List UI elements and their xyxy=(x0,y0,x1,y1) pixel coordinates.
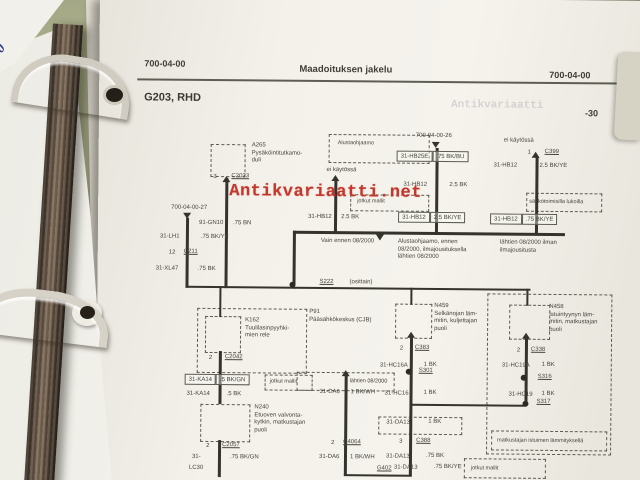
wire-label: Vain ennen 08/2000 xyxy=(321,238,374,246)
dashed-box-label: matkustajan istuimen lämmityksellä xyxy=(497,437,583,444)
wire-label: 31-DA13 xyxy=(386,420,410,428)
watermark: Antikvariaatti.net xyxy=(229,183,422,202)
wire-label: 2.5 BK xyxy=(449,182,467,190)
wire-label: N459 Selkänojan läm- mitin, kuljettajan … xyxy=(434,303,477,333)
wire-label: 12 xyxy=(169,250,176,258)
connector-label: C388 xyxy=(416,438,430,446)
wire-label: N458 Istuintyynyn läm- mitin, matkustaja… xyxy=(549,304,598,334)
wire-label: 31-HB12 xyxy=(493,162,517,170)
dashed-box-label: jotkut mallit xyxy=(471,465,499,472)
wire-label: 31-KA14 xyxy=(186,391,209,399)
connector-label: S316 xyxy=(538,374,552,382)
wire-label: 2 xyxy=(209,355,212,363)
wire-label: 91-GN10 xyxy=(199,220,223,228)
wire-label: 2.5 BK/YE xyxy=(539,163,567,171)
wire-gauge-color: 2.5 BK/YE xyxy=(430,212,466,223)
dashed-box-label: lähtien 08/2000 xyxy=(350,378,388,385)
wire-label: 1 BK/WH xyxy=(351,389,376,397)
wire-gauge-color: .5 BK/GN xyxy=(216,374,249,385)
wire-label: K162 Tuulilasinpyyhki- mien rele xyxy=(245,317,289,340)
wire-label: 1 BK xyxy=(542,362,555,370)
connector-label: C383 xyxy=(415,345,429,353)
wire-segment xyxy=(344,375,348,475)
wire-arrow-up xyxy=(407,332,415,338)
wire-label: 2 xyxy=(400,346,403,354)
wire-label: 31-HC16 xyxy=(385,390,409,398)
photo-of-manual-page: 700-04-00 Maadoituksen jakelu 700-04-00 … xyxy=(0,0,640,480)
wire-label: ei käytössä xyxy=(504,138,534,146)
wire-label: N240 Etuoven valvonta- kytkin, matkustaj… xyxy=(254,404,305,434)
wire-code-box: 31-HB122.5 BK/YE xyxy=(398,212,465,224)
wire-segment xyxy=(344,474,412,477)
wire-code-box: 31-KA14.5 BK/GN xyxy=(185,374,250,386)
connector-label: C399 xyxy=(545,149,559,157)
connector-label: C2042 xyxy=(225,354,243,362)
wire-code: 31-HB12 xyxy=(398,212,430,223)
wire-segment xyxy=(293,231,565,236)
wire-label: 31-DA6 xyxy=(320,389,340,397)
wire-label: .75 BK/GN xyxy=(230,454,259,462)
component-box-n240 xyxy=(200,404,250,442)
wire-gauge-color: .75 BK/YE xyxy=(522,214,558,225)
wire-code: 31-KA14 xyxy=(185,374,216,385)
connector-label: C211 xyxy=(184,249,198,257)
wire-label: 1 xyxy=(528,150,531,158)
wire-label: 3 xyxy=(213,174,216,182)
wire-arrow-up xyxy=(522,333,530,339)
wire-segment xyxy=(219,286,221,317)
variant-box-jotkut-mallit: jotkut mallit xyxy=(464,458,546,479)
wire-label: 31-HB12 xyxy=(308,214,332,222)
wire-code-box: 31-HB12.75 BK/YE xyxy=(490,213,557,225)
wire-label: 2 xyxy=(331,440,334,448)
wire-label: .75 BK/YE xyxy=(201,234,229,242)
wire-segment xyxy=(218,440,221,477)
wire-code-box: 31-HB25E.75 BK/BU xyxy=(397,151,469,163)
wire-code: 31-HB25E xyxy=(397,151,433,162)
splice-dot-s317 xyxy=(522,401,528,407)
wire-label: 31-DA13 xyxy=(394,465,418,473)
component-box-k162 xyxy=(205,316,241,353)
wire-label: A265 Pysäköintitutkamo- duli xyxy=(252,142,303,165)
wire-label: 31-HC16A xyxy=(380,362,408,370)
diagram: Alustaohjaamojotkut mallitsähkötoimisill… xyxy=(96,0,640,480)
wire-label: .75 BK/YE xyxy=(434,464,462,472)
wire-label: 3 xyxy=(399,439,402,447)
wire-segment xyxy=(410,288,412,305)
wire-label: 2.5 BK xyxy=(341,214,359,222)
wire-label: 31-HC19 xyxy=(508,392,532,400)
wire-label: 1 BK xyxy=(424,390,437,398)
connector-label: C2057 xyxy=(222,442,240,450)
binder-ring-hole-bottom xyxy=(80,306,95,319)
wire-label: lähtien 08/2000 ilman ilmajousitusta xyxy=(500,239,557,254)
wire-label: 2 xyxy=(206,443,209,451)
wire-segment xyxy=(185,286,295,289)
wire-label: 1 BK/WH xyxy=(350,454,375,462)
wire-label: ei käytössä xyxy=(326,167,356,175)
wire-label: P91 Pääsähkökeskus (CJB) xyxy=(309,309,371,325)
wire-arrow-down xyxy=(376,234,384,240)
divider-tab xyxy=(614,51,640,140)
connector-label: S222 xyxy=(319,279,333,287)
wire-label: LC30 xyxy=(189,465,203,473)
wire-segment xyxy=(292,231,295,285)
splice-dot-s222 xyxy=(289,282,295,288)
wire-label: 31-HC19A xyxy=(502,363,530,371)
wire-label: .75 BK xyxy=(198,266,216,274)
connector-label: C4064 xyxy=(343,439,361,447)
dashed-box-label: Alustaohjaamo xyxy=(338,140,374,147)
wire-label: .75 BN xyxy=(233,220,251,228)
wire-label: (osittain) xyxy=(349,279,372,287)
splice-dot-s316 xyxy=(521,375,527,381)
wire-arrow-up xyxy=(532,152,540,158)
wire-segment xyxy=(526,289,528,306)
wire-label: 31-DA6 xyxy=(319,454,339,462)
wire-arrow-down xyxy=(183,213,191,219)
connector-label: C338 xyxy=(531,347,545,355)
wire-label: 31-LH1 xyxy=(160,234,180,242)
wire-label: 1 BK xyxy=(542,391,555,399)
wire-label: Alustaohjaamo, ennen 08/2000, ilmajousit… xyxy=(398,239,467,262)
variant-box-istuinlammitys: matkustajan istuimen lämmityksellä xyxy=(491,430,607,451)
connector-label: S301 xyxy=(419,368,433,376)
dashed-box-label: jotkut mallit xyxy=(270,378,298,385)
wire-arrow-up xyxy=(331,175,339,181)
wire-segment xyxy=(411,404,525,407)
wire-label: 31-XL47 xyxy=(156,265,179,273)
wire-code: 31-HB12 xyxy=(490,213,522,224)
wire-label: .75 BK xyxy=(426,453,444,461)
wire-label: .5 BK xyxy=(226,391,241,399)
wire-label: 31-DA13 xyxy=(386,454,410,462)
wire-label: 700-04-00-26 xyxy=(416,133,452,141)
wire-gauge-color: .75 BK/BU xyxy=(432,151,468,162)
wire-label: 1 BK xyxy=(428,419,441,427)
connector-label: C2023 xyxy=(231,173,249,181)
connector-label: S317 xyxy=(536,399,550,407)
wire-arrow-up xyxy=(342,370,350,376)
manual-page: 700-04-00 Maadoituksen jakelu 700-04-00 … xyxy=(96,0,640,480)
binder-ring-hole-top xyxy=(103,85,126,105)
wire-label: 700-04-00-27 xyxy=(171,205,207,213)
wire-label: 31- xyxy=(192,454,201,462)
connector-label: G402 xyxy=(377,465,392,473)
wire-label: 2 xyxy=(517,348,520,356)
wire-arrow-down xyxy=(432,142,440,148)
